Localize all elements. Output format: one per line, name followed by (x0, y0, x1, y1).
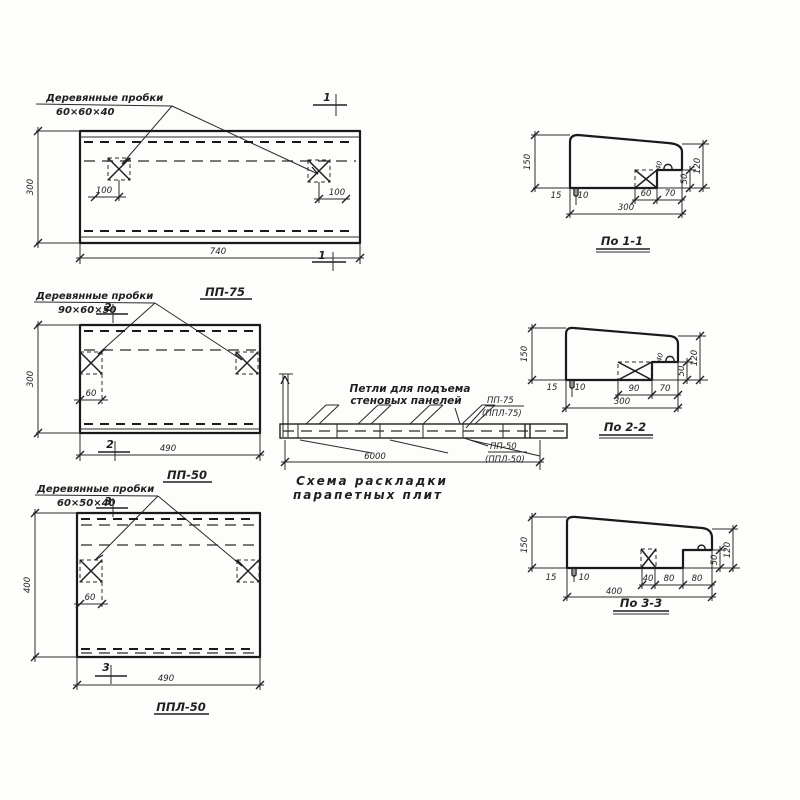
scheme-label-ppl50: (ППЛ-50) (485, 455, 525, 465)
pp50-title: ПП-50 (163, 468, 212, 482)
pp75-outline (80, 131, 360, 243)
ppl50-label: ППЛ-50 (156, 700, 206, 714)
ppl50-outline (77, 513, 260, 657)
ppl50-section-mark-bottom: 3 (95, 661, 127, 684)
pp75-dim-740: 740 (210, 247, 226, 257)
sec3-plug (641, 549, 656, 568)
sec3-dims-left: 150 (520, 513, 567, 572)
section-1-1: 40 15 10 60 70 300 50 (523, 131, 710, 252)
pp75-plug-left: 100 (88, 158, 130, 201)
pp75-section-mark-top: 1 (313, 91, 347, 116)
pp75-plug-dim-left: 100 (96, 186, 112, 196)
pp75-plug-dim-right: 100 (329, 188, 345, 198)
scheme-plate-strip (280, 424, 567, 438)
pp75-dim-300: 300 (26, 179, 36, 195)
sec2-dim-total: 300 (614, 397, 630, 407)
ppl50-plug-dim: 60 (85, 593, 96, 603)
ppl50-dim-490: 490 (158, 674, 174, 684)
scheme-note-line2: стеновых панелей (350, 395, 462, 407)
sec2-dim-seg2: 70 (660, 384, 671, 394)
pp50-dim-width: 490 (76, 433, 264, 461)
pp75-callout-line2: 60×60×40 (56, 107, 115, 118)
pp50-outline (80, 325, 260, 433)
sec3-dims-right: 50 120 (710, 525, 738, 572)
pp50-label: ПП-50 (167, 468, 207, 482)
sec1-profile (570, 135, 682, 188)
pp50-plug-dim: 60 (86, 389, 97, 399)
section-mark-2-bottom: 2 (106, 438, 114, 451)
layout-scheme: Петли для подъема стеновых панелей ПП-75… (279, 374, 567, 502)
sec2-dim-seg1: 90 (629, 384, 640, 394)
section-mark-3-top: 3 (104, 495, 112, 508)
scheme-dim-6000: 6000 (364, 452, 386, 462)
scheme-wall-edge (279, 374, 293, 437)
sec1-dim-tooth: 10 (578, 191, 589, 201)
ppl50-plug-right (237, 560, 259, 582)
sec1-plug (635, 170, 657, 188)
ppl50-callout-line1: Деревянные пробки (36, 483, 154, 495)
sec3-title: По 3-3 (613, 596, 669, 614)
scheme-caption-line1: Схема раскладки (296, 474, 448, 488)
blueprint-page: Деревянные пробки 60×60×40 1 (0, 0, 800, 800)
ppl50-plug-left: 60 (74, 560, 108, 608)
sec2-dim-height: 150 (520, 346, 530, 362)
sec3-dim-seat: 50 (710, 555, 720, 566)
sec3-dim-seg1: 40 (643, 574, 654, 584)
sec3-dim-height: 150 (520, 537, 530, 553)
scheme-note-line1: Петли для подъема (350, 383, 471, 395)
section-mark-1-top: 1 (323, 91, 331, 104)
sec2-dim-edge: 15 (547, 383, 558, 393)
sec2-dims-left: 150 (520, 324, 566, 384)
sec1-dim-seg1: 60 (641, 189, 652, 199)
plan-pp75: Деревянные пробки 60×60×40 1 (26, 91, 364, 299)
sec3-dim-seg3: 80 (692, 574, 703, 584)
sec2-dim-seat: 50 (677, 366, 687, 377)
scheme-label-pp75: ПП-75 (487, 396, 514, 406)
sec3-dim-tooth: 10 (579, 573, 590, 583)
pp50-plug-right (236, 352, 258, 374)
sec3-label: По 3-3 (620, 596, 662, 610)
sec1-dim-total: 300 (618, 203, 634, 213)
scheme-note-leader (455, 408, 460, 424)
pp75-plug-right: 100 (308, 160, 350, 203)
sec1-dim-height: 150 (523, 154, 533, 170)
pp50-dim-490: 490 (160, 444, 176, 454)
sec1-dims-left: 150 (523, 131, 570, 192)
sec1-label: По 1-1 (601, 234, 643, 248)
scheme-label-ppl75: (ППЛ-75) (482, 409, 522, 419)
pp50-section-mark-bottom: 2 (98, 438, 130, 461)
ppl50-dim-400: 400 (23, 577, 33, 593)
section-2-2: 40 15 10 90 70 300 50 (520, 324, 708, 438)
scheme-label-pp50: ПП-50 (490, 442, 517, 452)
sec1-dim-seat: 50 (680, 174, 690, 185)
pp75-title: ПП-75 (200, 285, 252, 299)
sec1-dim-edge: 15 (551, 191, 562, 201)
pp75-label: ПП-75 (205, 285, 245, 299)
sec3-dim-edge: 15 (546, 573, 557, 583)
sec1-dim-right: 120 (693, 158, 703, 174)
section-mark-3-bottom: 3 (102, 661, 110, 674)
pp75-section-mark-bottom: 1 (312, 249, 346, 271)
sec2-plug (618, 362, 652, 380)
sec3-profile (567, 517, 712, 568)
sec1-dims-right: 50 120 (680, 140, 709, 192)
pp50-dim-300: 300 (26, 371, 36, 387)
pp75-dim-height: 300 (26, 127, 80, 248)
pp50-dim-height: 300 (26, 321, 80, 438)
sec2-label: По 2-2 (604, 420, 646, 434)
ppl50-title: ППЛ-50 (154, 700, 209, 714)
plan-pp50: Деревянные пробки 90×60×50 2 (26, 290, 264, 482)
sec1-title: По 1-1 (596, 234, 650, 252)
scheme-label-bottom: ПП-50 (ППЛ-50) (464, 438, 527, 465)
ppl50-dim-height: 400 (23, 509, 77, 662)
sec3-dim-right: 120 (723, 542, 733, 558)
section-mark-2-top: 2 (104, 301, 112, 314)
pp75-callout-line1: Деревянные пробки (45, 92, 163, 104)
sec2-dims-right: 50 120 (677, 332, 706, 384)
sec2-dim-right: 120 (690, 350, 700, 366)
sec1-dim-seg2: 70 (665, 189, 676, 199)
sec3-dim-seg2: 80 (664, 574, 675, 584)
plan-ppl50: Деревянные пробки 60×50×40 3 (23, 483, 264, 714)
technical-drawing: Деревянные пробки 60×60×40 1 (0, 0, 800, 800)
sec2-dim-tooth: 10 (575, 383, 586, 393)
scheme-caption-line2: парапетных плит (293, 488, 443, 502)
pp50-callout-line1: Деревянные пробки (35, 290, 153, 302)
section-mark-1-bottom: 1 (318, 249, 326, 262)
sec2-title: По 2-2 (599, 420, 653, 438)
section-3-3: 15 10 40 80 80 400 5 (520, 513, 740, 614)
